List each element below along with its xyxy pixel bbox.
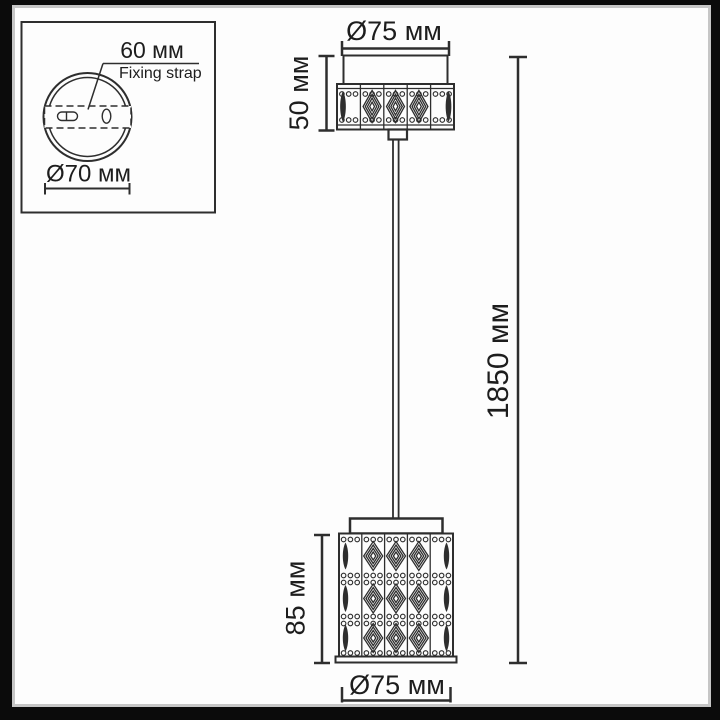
suspension-rod — [393, 140, 399, 520]
shade-bottom-rim — [336, 657, 457, 663]
leader-line — [88, 64, 103, 110]
canopy-cup — [344, 56, 448, 85]
canopy-rod-connector — [389, 130, 408, 140]
dimension-canopy-diameter: Ø75 мм — [342, 16, 449, 56]
dimension-plate-diameter: Ø70 мм — [45, 161, 131, 195]
pendant-lamp-dimension-drawing: 60 мм Fixing strap Ø70 мм Ø75 мм — [0, 0, 720, 720]
fixing-strap-label: Fixing strap — [119, 65, 202, 82]
overall-height-label: 1850 мм — [482, 303, 515, 419]
shade — [336, 519, 457, 663]
dimension-shade-diameter: Ø75 мм — [342, 670, 451, 703]
shade-height-label: 85 мм — [281, 561, 311, 636]
shade-top-cap — [350, 519, 443, 534]
canopy — [337, 56, 454, 140]
shade-diameter-label: Ø75 мм — [349, 670, 445, 700]
plate-diameter-label: Ø70 мм — [46, 161, 131, 188]
dimension-overall-height: 1850 мм — [482, 57, 527, 663]
mount-plate-inset: 60 мм Fixing strap Ø70 мм — [22, 22, 216, 213]
dimension-shade-height: 85 мм — [281, 535, 331, 663]
strap-width-label: 60 мм — [120, 37, 184, 63]
dimension-canopy-height: 50 мм — [284, 56, 335, 131]
canopy-height-label: 50 мм — [284, 56, 314, 131]
canopy-diameter-label: Ø75 мм — [346, 16, 442, 46]
